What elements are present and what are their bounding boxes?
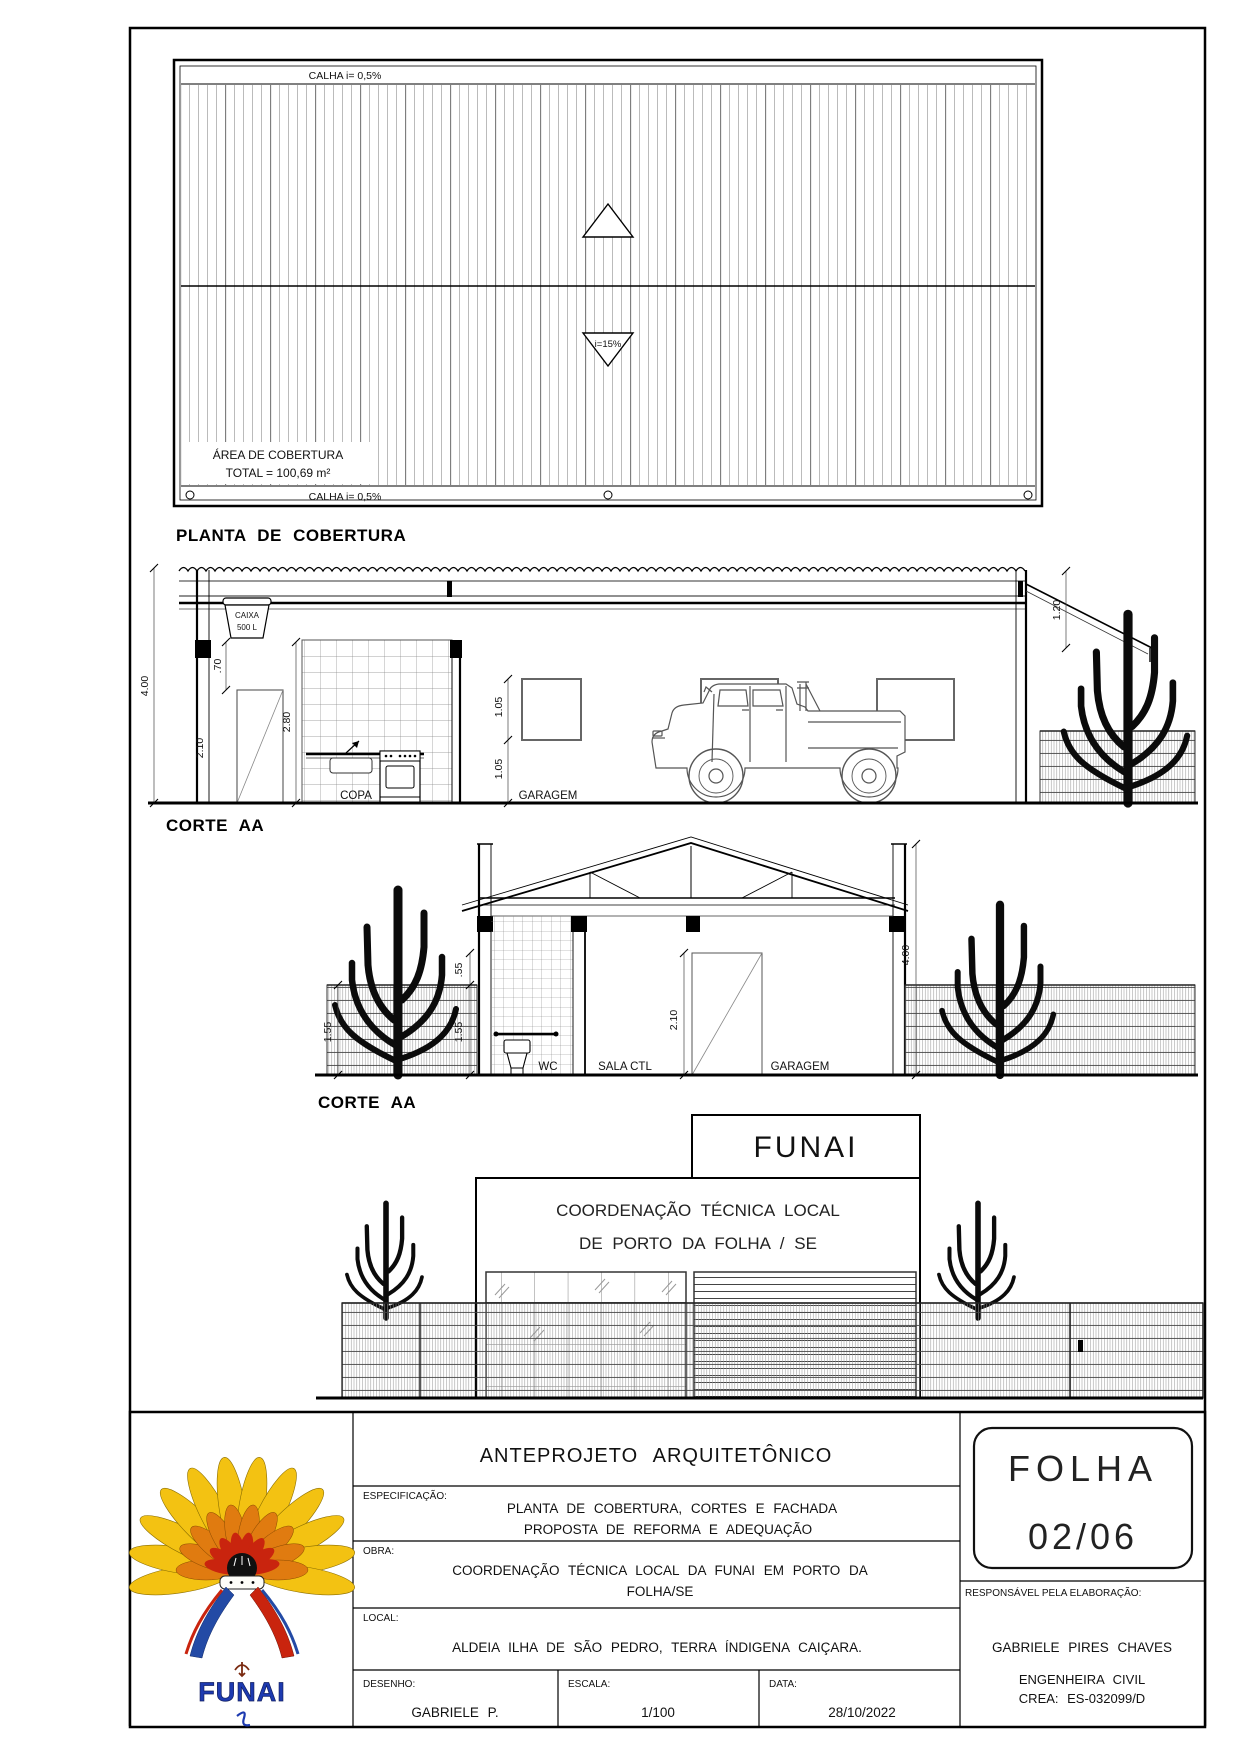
facade-fence	[342, 1303, 1203, 1398]
espec-line1: PLANTA DE COBERTURA, CORTES E FACHADA	[507, 1501, 837, 1516]
architectural-drawing: CALHA i= 0,5% i=15% ÁREA DE COBERTURA TO…	[0, 0, 1241, 1755]
obra-line2: FOLHA/SE	[627, 1584, 694, 1599]
dim-fence-left: 1.55	[322, 1022, 334, 1043]
data-label: DATA:	[769, 1679, 797, 1690]
dim-top-gap: .55	[453, 963, 465, 978]
title-block: ANTEPROJETO ARQUITETÔNICO ESPECIFICAÇÃO:…	[127, 1412, 1205, 1727]
dim-total-height: 4.00	[139, 676, 151, 697]
dim-beam: .70	[212, 659, 224, 674]
drawing-sheet: CALHA i= 0,5% i=15% ÁREA DE COBERTURA TO…	[0, 0, 1241, 1755]
gutter-bottom-label: CALHA i= 0,5%	[309, 491, 382, 503]
desenho-value: GABRIELE P.	[411, 1705, 498, 1720]
escala-value: 1/100	[641, 1705, 675, 1720]
resp-crea: CREA: ES-032099/D	[1019, 1691, 1145, 1706]
logo-funai-text: FUNAI	[198, 1677, 286, 1707]
dim-right-drop: 1.20	[1051, 600, 1063, 621]
corte1-title: CORTE AA	[166, 816, 264, 835]
espec-line2: PROPOSTA DE REFORMA E ADEQUAÇÃO	[524, 1522, 812, 1537]
roof-plan-title: PLANTA DE COBERTURA	[176, 526, 406, 545]
resp-label: RESPONSÁVEL PELA ELABORAÇÃO:	[965, 1586, 1141, 1599]
gutter-top-label: CALHA i= 0,5%	[309, 70, 382, 82]
facade-name-line1: COORDENAÇÃO TÉCNICA LOCAL	[556, 1201, 840, 1220]
dim-wall-height: 4.00	[900, 945, 912, 966]
corte2-title: CORTE AA	[318, 1093, 416, 1112]
roof-area-line1: ÁREA DE COBERTURA	[213, 447, 343, 462]
desenho-label: DESENHO:	[363, 1679, 415, 1690]
room-label-copa: COPA	[340, 790, 372, 802]
dim-door-height: 2.10	[194, 738, 206, 759]
obra-label: OBRA:	[363, 1546, 394, 1557]
room-label-wc: WC	[538, 1061, 557, 1073]
resp-role: ENGENHEIRA CIVIL	[1019, 1672, 1145, 1687]
local-label: LOCAL:	[363, 1613, 399, 1624]
room-label-sala-ctl: SALA CTL	[598, 1061, 652, 1073]
roof-plan: CALHA i= 0,5% i=15% ÁREA DE COBERTURA TO…	[174, 60, 1042, 506]
roof-area-line2: TOTAL = 100,69 m²	[226, 466, 331, 480]
facade-name-line2: DE PORTO DA FOLHA / SE	[579, 1234, 817, 1253]
local-text: ALDEIA ILHA DE SÃO PEDRO, TERRA ÍNDIGENA…	[452, 1640, 862, 1655]
tank-label-2: 500 L	[237, 623, 258, 632]
facade-sign-text: FUNAI	[754, 1131, 859, 1164]
window-section1	[522, 679, 581, 740]
dim-ceiling-height: 2.80	[281, 712, 293, 733]
data-value: 28/10/2022	[828, 1705, 896, 1720]
dim-sill-height: 1.05	[493, 759, 505, 780]
roof-sheeting-hatch	[181, 85, 1035, 485]
folha-number: 02/06	[1028, 1516, 1138, 1557]
folha-word: FOLHA	[1008, 1448, 1158, 1489]
espec-label: ESPECIFICAÇÃO:	[363, 1489, 447, 1502]
obra-line1: COORDENAÇÃO TÉCNICA LOCAL DA FUNAI EM PO…	[452, 1563, 868, 1578]
water-tank: CAIXA 500 L	[223, 598, 271, 638]
roof-slope-label: i=15%	[595, 339, 622, 350]
gate-latch	[1078, 1340, 1083, 1352]
room-label-garagem-1: GARAGEM	[519, 790, 578, 802]
tank-label-1: CAIXA	[235, 611, 260, 620]
kitchen-tile-wall	[302, 640, 452, 803]
dim-fence-right: 1.55	[453, 1022, 465, 1043]
resp-name: GABRIELE PIRES CHAVES	[992, 1640, 1172, 1655]
sheet-title: ANTEPROJETO ARQUITETÔNICO	[480, 1444, 833, 1467]
dim-window-height: 1.05	[493, 697, 505, 718]
dim-door2-height: 2.10	[668, 1010, 680, 1031]
room-label-garagem-2: GARAGEM	[771, 1061, 830, 1073]
escala-label: ESCALA:	[568, 1679, 610, 1690]
stove	[380, 751, 420, 803]
wc-tile-wall	[491, 916, 573, 1075]
